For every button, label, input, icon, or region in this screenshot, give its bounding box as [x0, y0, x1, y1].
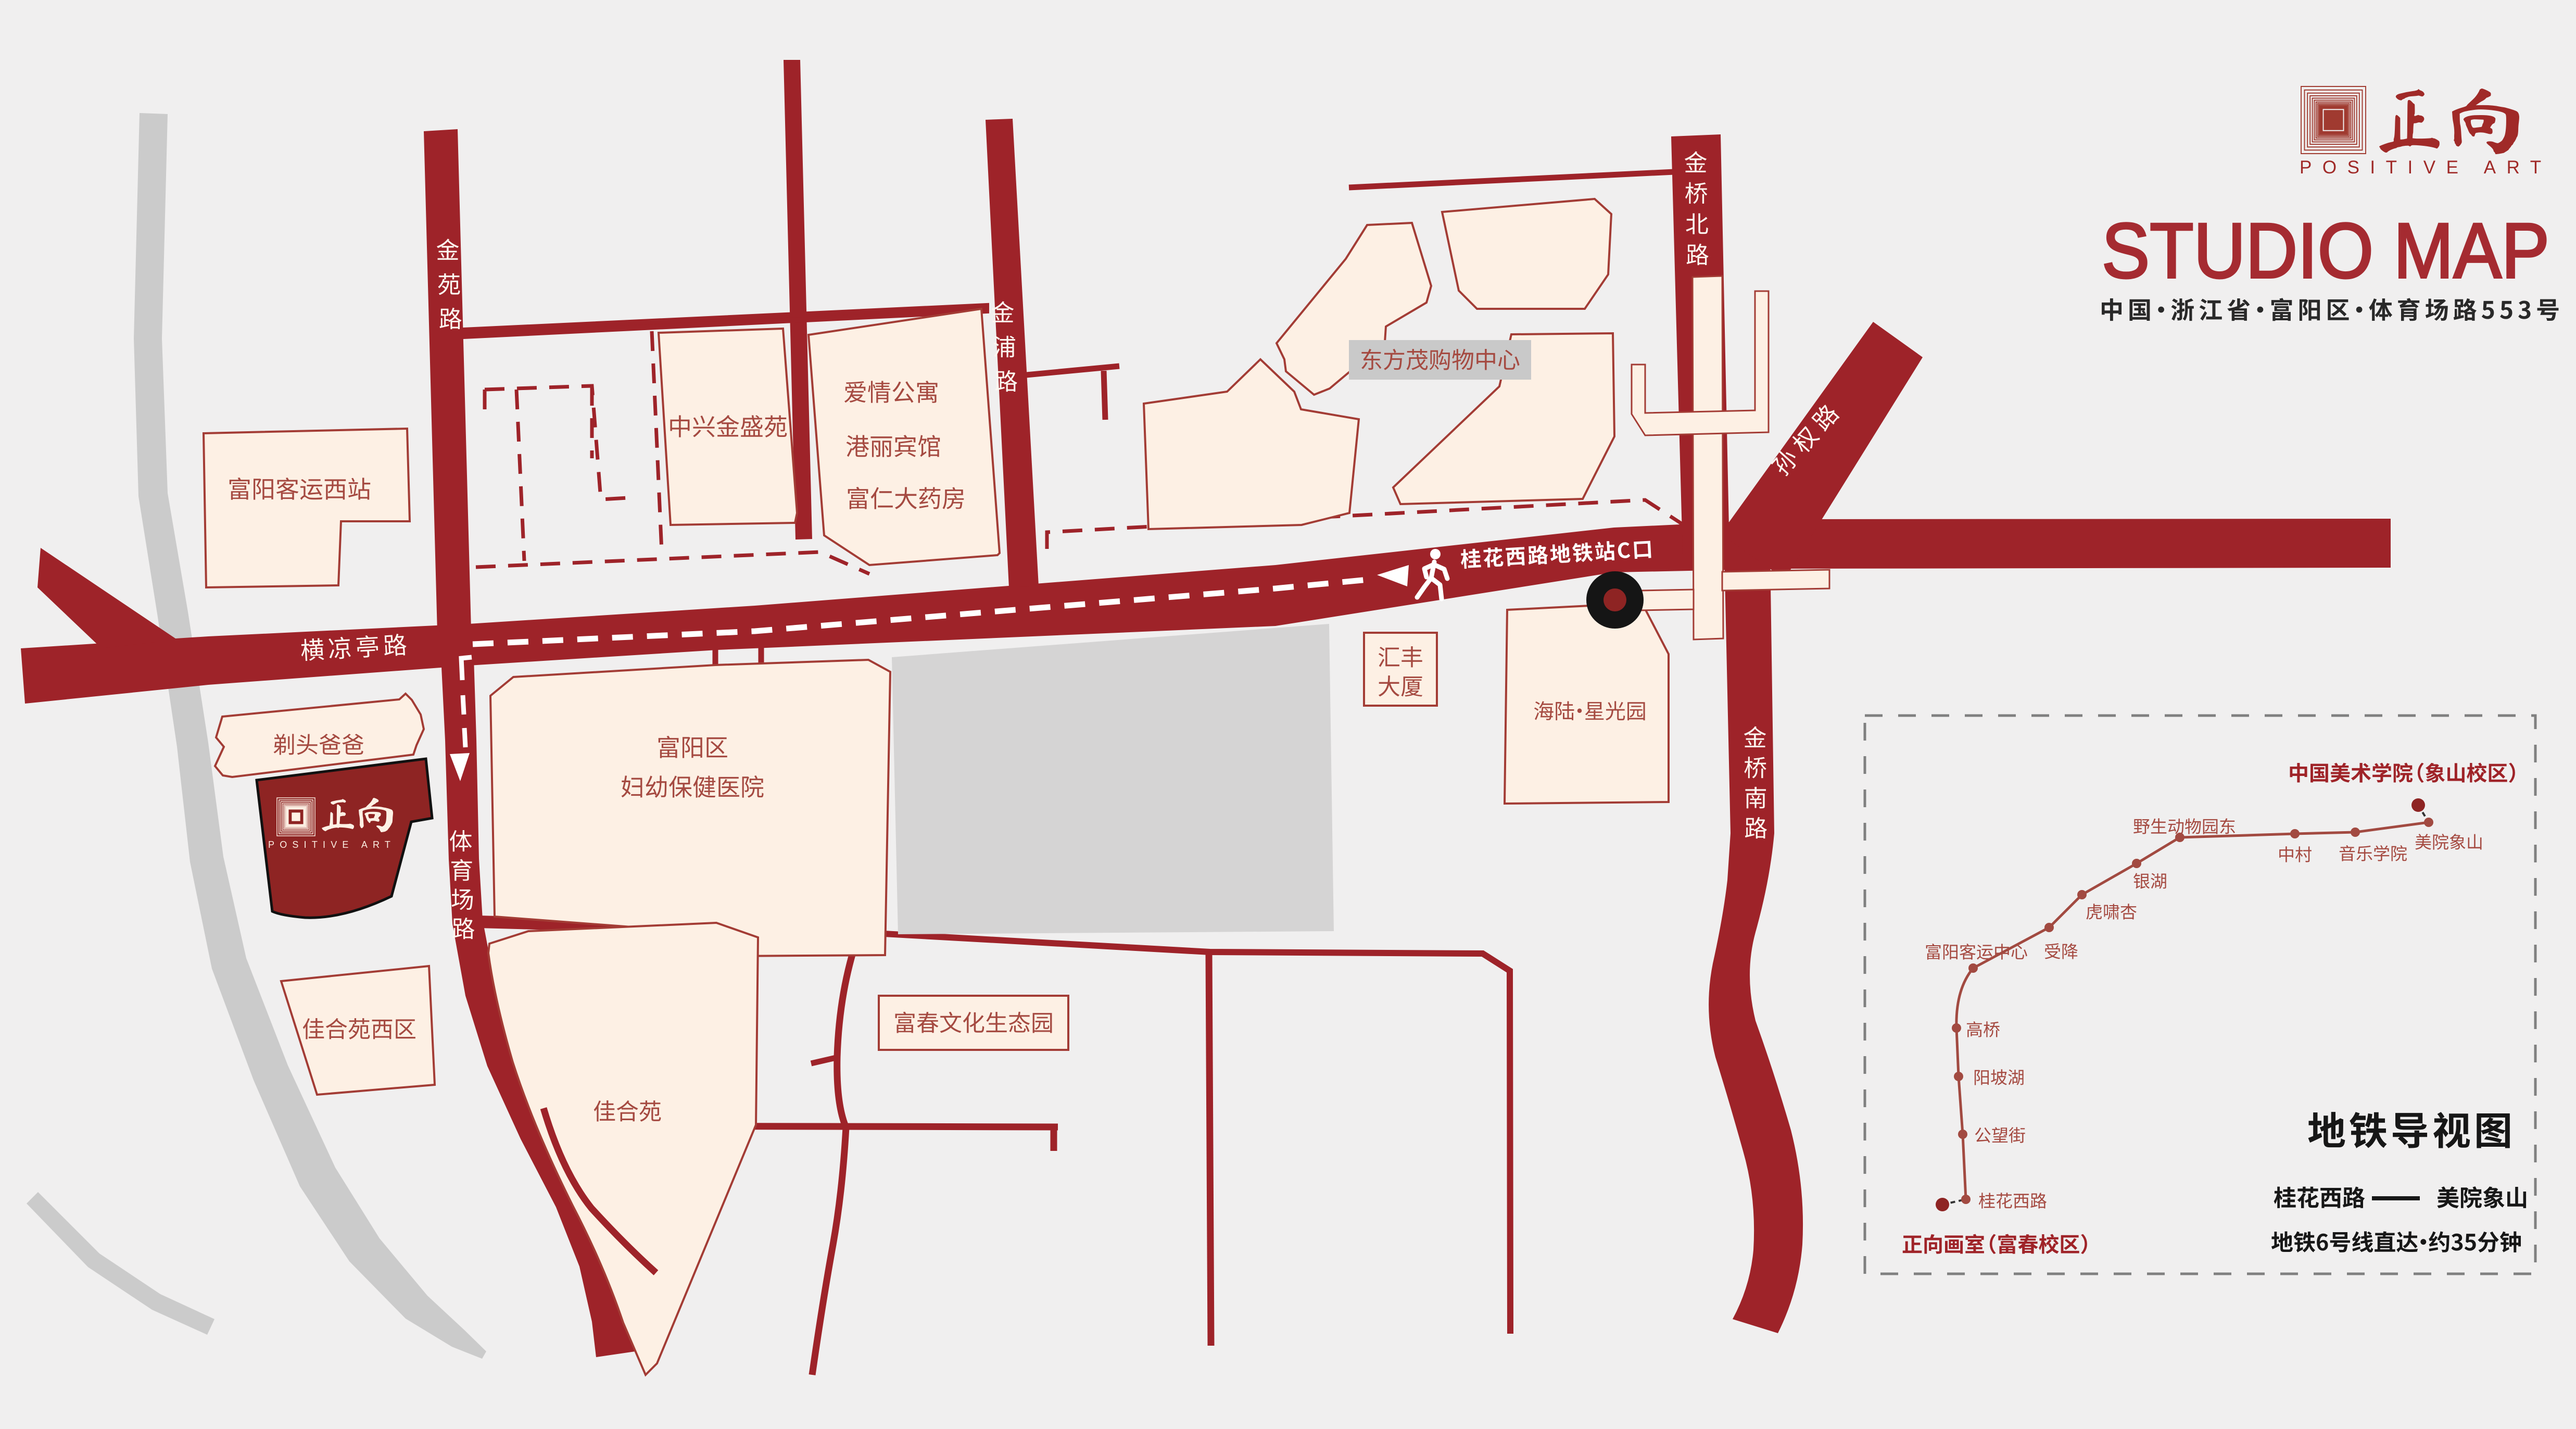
- svg-text:POSITIVE ART: POSITIVE ART: [2300, 157, 2552, 178]
- svg-text:POSITIVE ART: POSITIVE ART: [268, 839, 396, 850]
- svg-text:STUDIO MAP: STUDIO MAP: [2102, 207, 2549, 294]
